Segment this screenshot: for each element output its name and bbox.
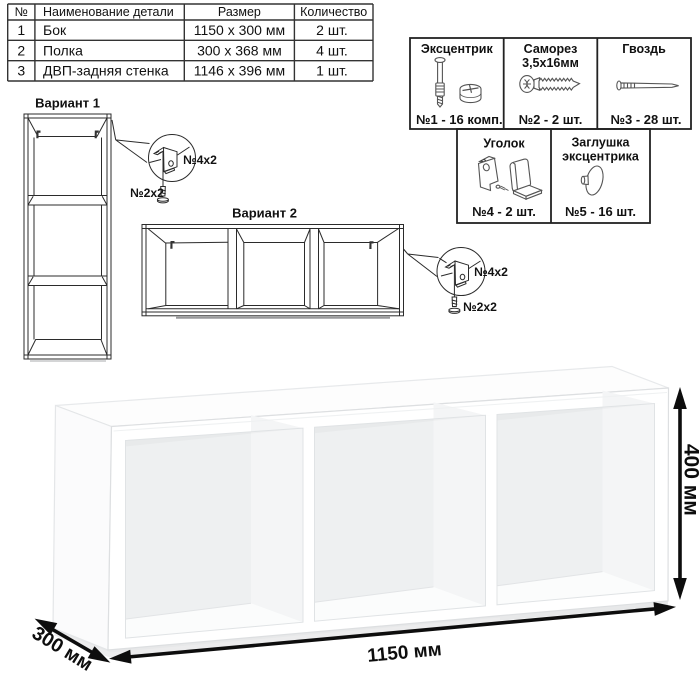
svg-text:1150 х 300 мм: 1150 х 300 мм — [194, 22, 285, 38]
svg-text:400 мм: 400 мм — [680, 444, 700, 516]
svg-text:Наименование детали: Наименование детали — [43, 5, 174, 19]
svg-text:Бок: Бок — [43, 22, 67, 38]
svg-text:Эксцентрик: Эксцентрик — [421, 42, 494, 56]
svg-text:Количество: Количество — [300, 5, 367, 19]
svg-text:1: 1 — [17, 22, 25, 38]
svg-text:3: 3 — [17, 63, 25, 79]
svg-text:Гвоздь: Гвоздь — [622, 42, 666, 56]
svg-text:№2 - 2 шт.: №2 - 2 шт. — [519, 112, 583, 127]
svg-text:№1 - 16 комп.: №1 - 16 комп. — [416, 112, 503, 127]
svg-text:№4 - 2 шт.: №4 - 2 шт. — [472, 204, 536, 219]
svg-text:300 х 368 мм: 300 х 368 мм — [197, 42, 282, 58]
svg-text:1146 х 396 мм: 1146 х 396 мм — [194, 63, 285, 79]
svg-text:Уголок: Уголок — [483, 137, 525, 151]
svg-text:Вариант 2: Вариант 2 — [232, 206, 297, 221]
svg-text:№4х2: №4х2 — [183, 153, 217, 167]
svg-text:№5 - 16 шт.: №5 - 16 шт. — [565, 204, 636, 219]
svg-text:1 шт.: 1 шт. — [316, 63, 348, 79]
svg-text:№2х2: №2х2 — [463, 300, 497, 314]
svg-text:2: 2 — [17, 42, 25, 58]
svg-text:4 шт.: 4 шт. — [316, 42, 348, 58]
svg-text:№4х2: №4х2 — [474, 265, 508, 279]
svg-text:3,5х16мм: 3,5х16мм — [522, 56, 579, 70]
svg-text:Вариант 1: Вариант 1 — [35, 96, 100, 111]
svg-text:№2х2: №2х2 — [130, 186, 164, 200]
svg-text:№3 - 28 шт.: №3 - 28 шт. — [610, 112, 681, 127]
svg-text:эксцентрика: эксцентрика — [562, 150, 640, 164]
svg-text:Заглушка: Заглушка — [571, 136, 630, 150]
svg-text:2 шт.: 2 шт. — [316, 22, 348, 38]
svg-text:Размер: Размер — [218, 5, 261, 19]
svg-text:Полка: Полка — [43, 42, 83, 58]
svg-text:№: № — [15, 5, 28, 19]
svg-text:ДВП-задняя стенка: ДВП-задняя стенка — [43, 63, 169, 79]
svg-text:Саморез: Саморез — [524, 42, 578, 56]
